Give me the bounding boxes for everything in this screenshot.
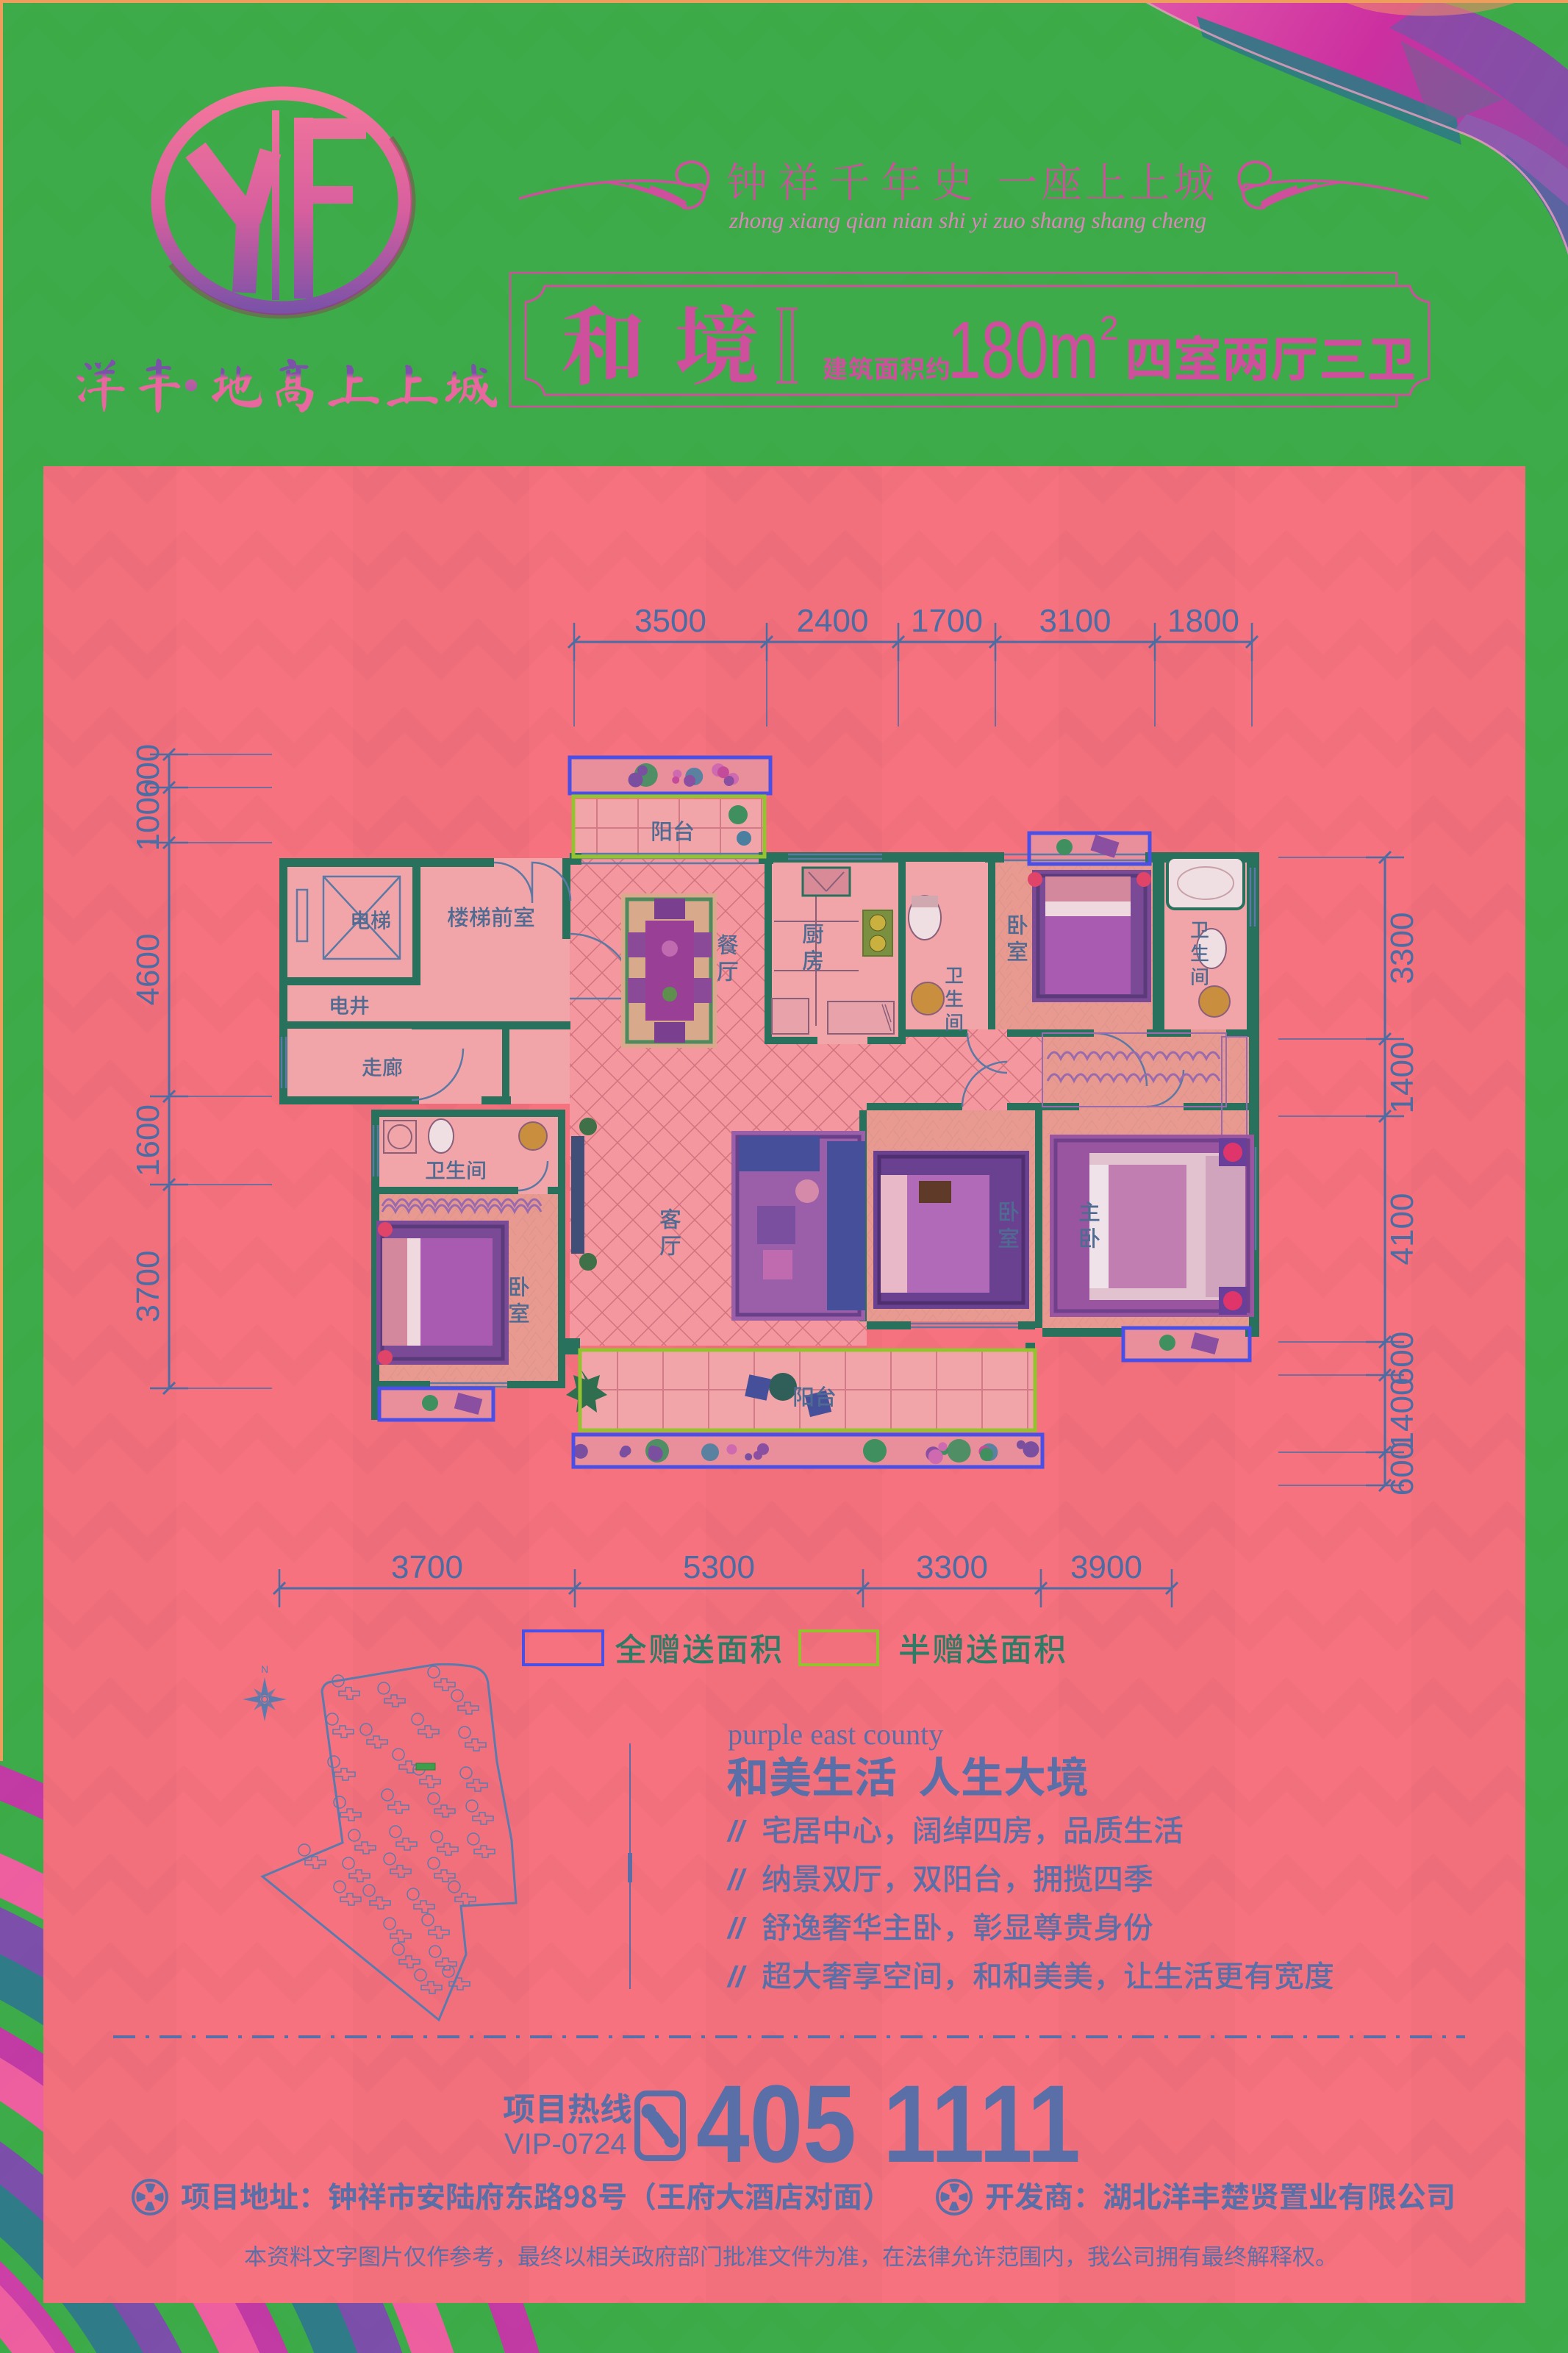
svg-text:2400: 2400 xyxy=(797,603,869,639)
svg-text:zhong xiang qian nian shi yi: zhong xiang qian nian shi yi zuo shang s… xyxy=(728,207,1206,233)
svg-text:600: 600 xyxy=(1384,1442,1420,1496)
svg-text:1600: 1600 xyxy=(130,1104,166,1176)
svg-text:VIP-0724: VIP-0724 xyxy=(504,2128,627,2160)
svg-text:N: N xyxy=(261,1663,268,1675)
svg-text://: // xyxy=(726,1815,747,1848)
svg-text:3900: 3900 xyxy=(1070,1549,1142,1585)
svg-text:1000: 1000 xyxy=(130,779,166,851)
svg-text:1400: 1400 xyxy=(1384,1378,1420,1450)
svg-text:405 1111: 405 1111 xyxy=(696,2062,1081,2185)
svg-text:1700: 1700 xyxy=(911,603,983,639)
svg-text:3300: 3300 xyxy=(1384,913,1420,985)
svg-text:3700: 3700 xyxy=(391,1549,463,1585)
svg-text:3300: 3300 xyxy=(916,1549,988,1585)
svg-text://: // xyxy=(726,1961,747,1993)
svg-text:1800: 1800 xyxy=(1167,603,1239,639)
svg-text:1400: 1400 xyxy=(1384,1042,1420,1114)
svg-text:4600: 4600 xyxy=(130,934,166,1006)
svg-text:3700: 3700 xyxy=(130,1251,166,1323)
svg-text:2: 2 xyxy=(1100,309,1119,347)
svg-text:3100: 3100 xyxy=(1039,603,1111,639)
svg-text://: // xyxy=(726,1864,747,1896)
svg-text:4100: 4100 xyxy=(1384,1193,1420,1265)
svg-text:180m: 180m xyxy=(948,305,1099,396)
svg-text:purple east county: purple east county xyxy=(728,1718,943,1751)
svg-text:600: 600 xyxy=(1384,1332,1420,1385)
svg-text://: // xyxy=(726,1913,747,1945)
svg-text:3500: 3500 xyxy=(634,603,706,639)
svg-text:5300: 5300 xyxy=(683,1549,755,1585)
